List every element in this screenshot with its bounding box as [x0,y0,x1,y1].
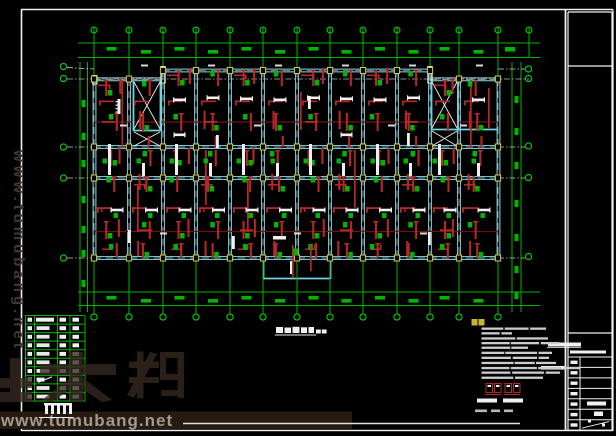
svg-text:www.tumubang.net: www.tumubang.net [10,149,27,352]
svg-text:www.tumubang.net: www.tumubang.net [0,411,173,430]
